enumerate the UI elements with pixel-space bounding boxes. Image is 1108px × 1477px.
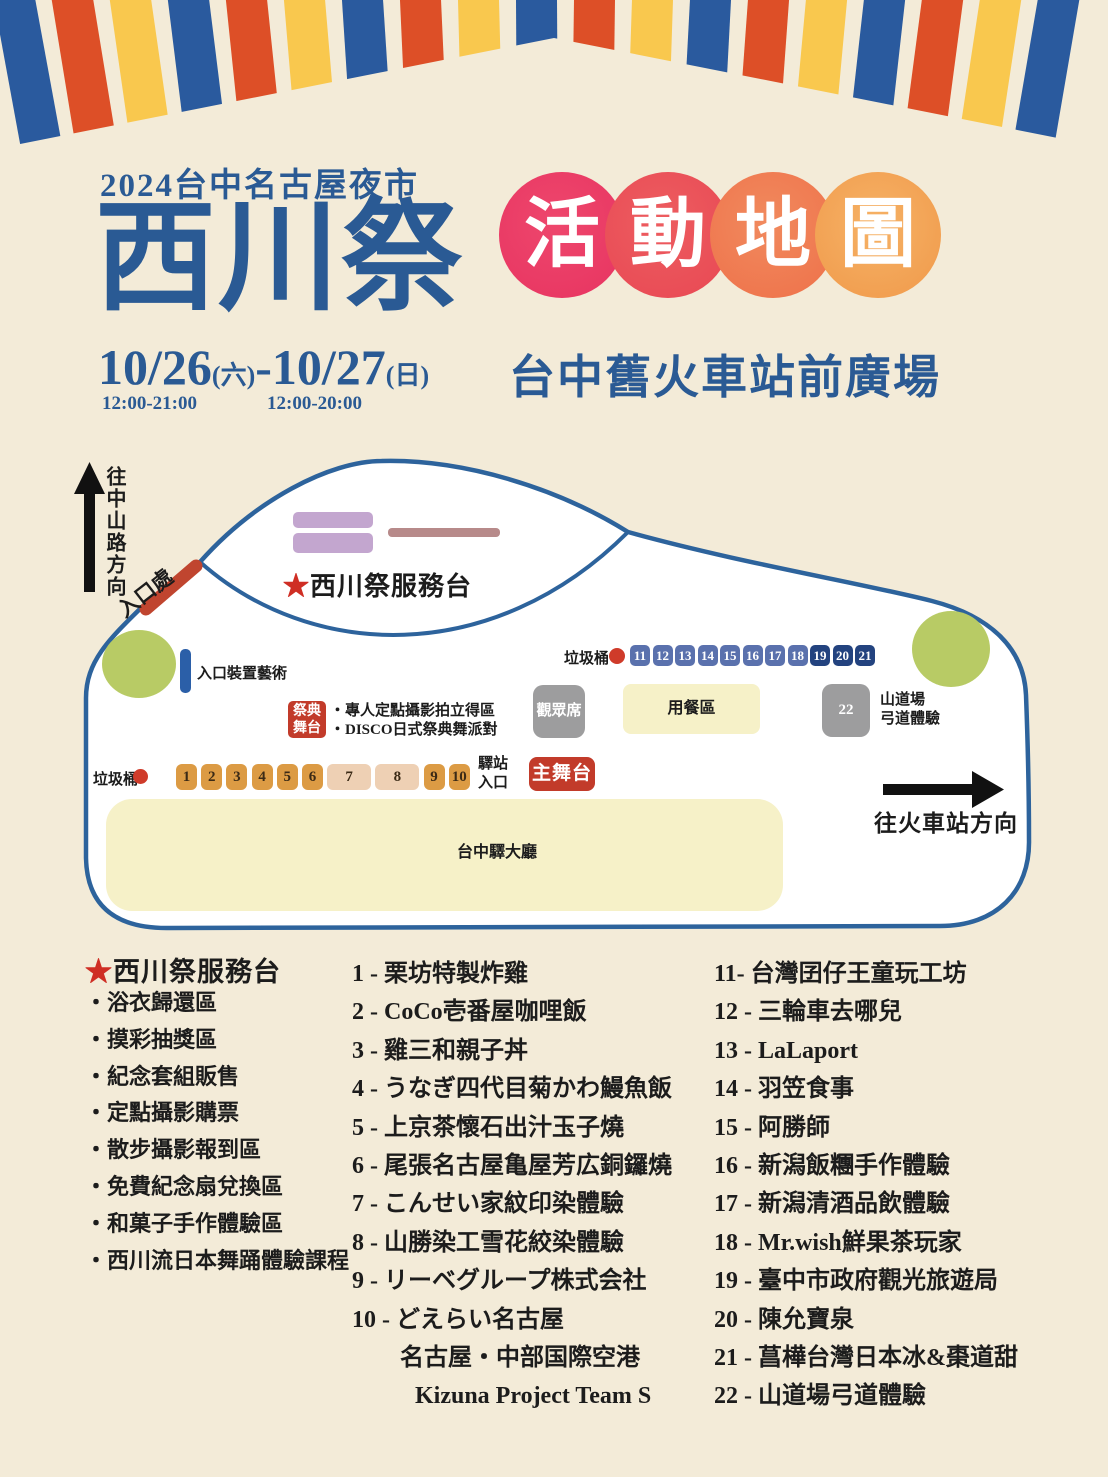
service-tent-2: [293, 533, 373, 553]
legend-booth-item: 1 - 栗坊特製炸雞: [352, 955, 672, 993]
dining-area: 用餐區: [623, 684, 760, 734]
booth-marker-11: 11: [630, 645, 650, 666]
booth-22-area: 22: [822, 684, 870, 737]
legend-service-item: ・散步攝影報到區: [85, 1132, 349, 1169]
festival-stage-area: 祭典舞台: [288, 701, 326, 738]
legend-booth-item: 17 - 新潟清酒品飲體驗: [714, 1185, 1018, 1223]
festival-stage-line2: 舞台: [288, 720, 326, 737]
legend-booth-item: 21 - 菖樺台灣日本冰&棗道甜: [714, 1339, 1018, 1377]
legend-booth-item: 13 - LaLaport: [714, 1032, 1018, 1070]
green-area-right: [912, 611, 990, 687]
legend-booth-item: 14 - 羽笠食事: [714, 1070, 1018, 1108]
booth-marker-21: 21: [855, 645, 875, 666]
legend-column-services: ・浴衣歸還區・摸彩抽獎區・紀念套組販售・定點攝影購票・散步攝影報到區・免費紀念扇…: [85, 985, 349, 1279]
booth-marker-20: 20: [833, 645, 853, 666]
legend-booth-item: 22 - 山道場弓道體驗: [714, 1377, 1018, 1415]
legend-booth-item: 4 - うなぎ四代目菊かわ鰻魚飯: [352, 1070, 672, 1108]
booth-marker-2: 2: [201, 764, 222, 790]
star-icon: ★: [85, 957, 113, 987]
booth-marker-12: 12: [653, 645, 673, 666]
legend-service-item: ・西川流日本舞踊體驗課程: [85, 1243, 349, 1280]
legend-booth-item: 19 - 臺中市政府觀光旅遊局: [714, 1262, 1018, 1300]
service-counter-bar: [388, 528, 500, 537]
legend-service-item: ・和菓子手作體驗區: [85, 1206, 349, 1243]
station-entrance-label: 驛站入口: [478, 755, 508, 793]
festival-stage-notes: ・專人定點攝影拍立得區・DISCO日式祭典舞派對: [330, 702, 498, 739]
legend-extra-line: 名古屋・中部国際空港: [352, 1339, 672, 1377]
booth-marker-14: 14: [698, 645, 718, 666]
legend-booth-item: 6 - 尾張名古屋亀屋芳広銅鑼燒: [352, 1147, 672, 1185]
legend-booth-item: 5 - 上京茶懷石出汁玉子燒: [352, 1109, 672, 1147]
booth-marker-6: 6: [302, 764, 323, 790]
legend-service-item: ・浴衣歸還區: [85, 985, 349, 1022]
legend-booth-item: 18 - Mr.wish鮮果茶玩家: [714, 1224, 1018, 1262]
service-desk-label: ★西川祭服務台: [283, 566, 472, 603]
legend-booth-item: 10 - どえらい名古屋: [352, 1301, 672, 1339]
event-map-poster: 2024台中名古屋夜市 西川祭 10/26(六)-10/27(日) 12:00-…: [0, 0, 1108, 1477]
legend-column-1-10: 1 - 栗坊特製炸雞2 - CoCo壱番屋咖哩飯3 - 雞三和親子丼4 - うな…: [352, 955, 672, 1416]
booth-marker-8: 8: [375, 764, 419, 790]
entrance-art-marker: [180, 649, 191, 693]
station-entrance-line1: 驛站: [478, 755, 508, 774]
archery-line2: 弓道體驗: [880, 710, 940, 729]
legend-booth-item: 8 - 山勝染工雪花絞染體驗: [352, 1224, 672, 1262]
booth-marker-5: 5: [277, 764, 298, 790]
main-stage-area: 主舞台: [529, 757, 595, 791]
booth-marker-16: 16: [743, 645, 763, 666]
festival-note-2: ・DISCO日式祭典舞派對: [330, 721, 498, 740]
trash-dot-top: [609, 648, 625, 664]
booth-marker-3: 3: [226, 764, 247, 790]
booth-marker-4: 4: [252, 764, 273, 790]
booth-marker-18: 18: [788, 645, 808, 666]
booth-marker-9: 9: [424, 764, 445, 790]
station-entrance-line2: 入口: [478, 774, 508, 793]
festival-note-1: ・專人定點攝影拍立得區: [330, 702, 498, 721]
festival-stage-line1: 祭典: [288, 703, 326, 720]
direction-station-label: 往火車站方向: [874, 804, 1018, 838]
booth-row-11-21: 1112131415161718192021: [630, 645, 875, 666]
station-hall-label: 台中驛大廳: [457, 838, 537, 862]
booth-marker-17: 17: [765, 645, 785, 666]
legend-service-item: ・摸彩抽獎區: [85, 1022, 349, 1059]
service-tent-1: [293, 512, 373, 528]
legend-booth-item: 16 - 新潟飯糰手作體驗: [714, 1147, 1018, 1185]
booth-marker-10: 10: [449, 764, 470, 790]
legend-service-item: ・定點攝影購票: [85, 1095, 349, 1132]
booth-marker-19: 19: [810, 645, 830, 666]
star-icon: ★: [283, 572, 310, 601]
legend-booth-item: 2 - CoCo壱番屋咖哩飯: [352, 993, 672, 1031]
legend-service-item: ・紀念套組販售: [85, 1059, 349, 1096]
audience-area: 觀眾席: [533, 685, 585, 738]
legend-column-11-22: 11- 台灣囝仔王童玩工坊12 - 三輪車去哪兒13 - LaLaport14 …: [714, 955, 1018, 1416]
booth-marker-13: 13: [675, 645, 695, 666]
archery-line1: 山道場: [880, 691, 940, 710]
trash-dot-bottom: [133, 769, 148, 784]
legend-service-item: ・免費紀念扇兌換區: [85, 1169, 349, 1206]
booth-row-1-10: 12345678910: [176, 764, 470, 790]
booth-marker-15: 15: [720, 645, 740, 666]
legend-booth-item: 20 - 陳允寶泉: [714, 1301, 1018, 1339]
service-desk-text: 西川祭服務台: [310, 572, 472, 601]
legend-booth-item: 7 - こんせい家紋印染體驗: [352, 1185, 672, 1223]
booth-marker-1: 1: [176, 764, 197, 790]
trash-label-bottom: 垃圾桶: [93, 768, 138, 789]
entrance-art-label: 入口裝置藝術: [197, 662, 287, 683]
archery-label: 山道場弓道體驗: [880, 691, 940, 729]
legend-booth-item: 3 - 雞三和親子丼: [352, 1032, 672, 1070]
legend-booth-item: 9 - リーベグループ株式会社: [352, 1262, 672, 1300]
booth-marker-7: 7: [327, 764, 371, 790]
legend-booth-item: 15 - 阿勝師: [714, 1109, 1018, 1147]
green-area-left: [102, 630, 176, 698]
station-hall-area: [106, 799, 783, 911]
legend-header-text: 西川祭服務台: [113, 957, 281, 987]
legend-booth-item: 12 - 三輪車去哪兒: [714, 993, 1018, 1031]
legend-extra-line: Kizuna Project Team S: [352, 1377, 672, 1415]
trash-label-top: 垃圾桶: [564, 647, 609, 668]
direction-zhongshan-label: 往中山路方向: [100, 466, 129, 598]
legend-booth-item: 11- 台灣囝仔王童玩工坊: [714, 955, 1018, 993]
legend-header: ★西川祭服務台: [85, 950, 281, 989]
